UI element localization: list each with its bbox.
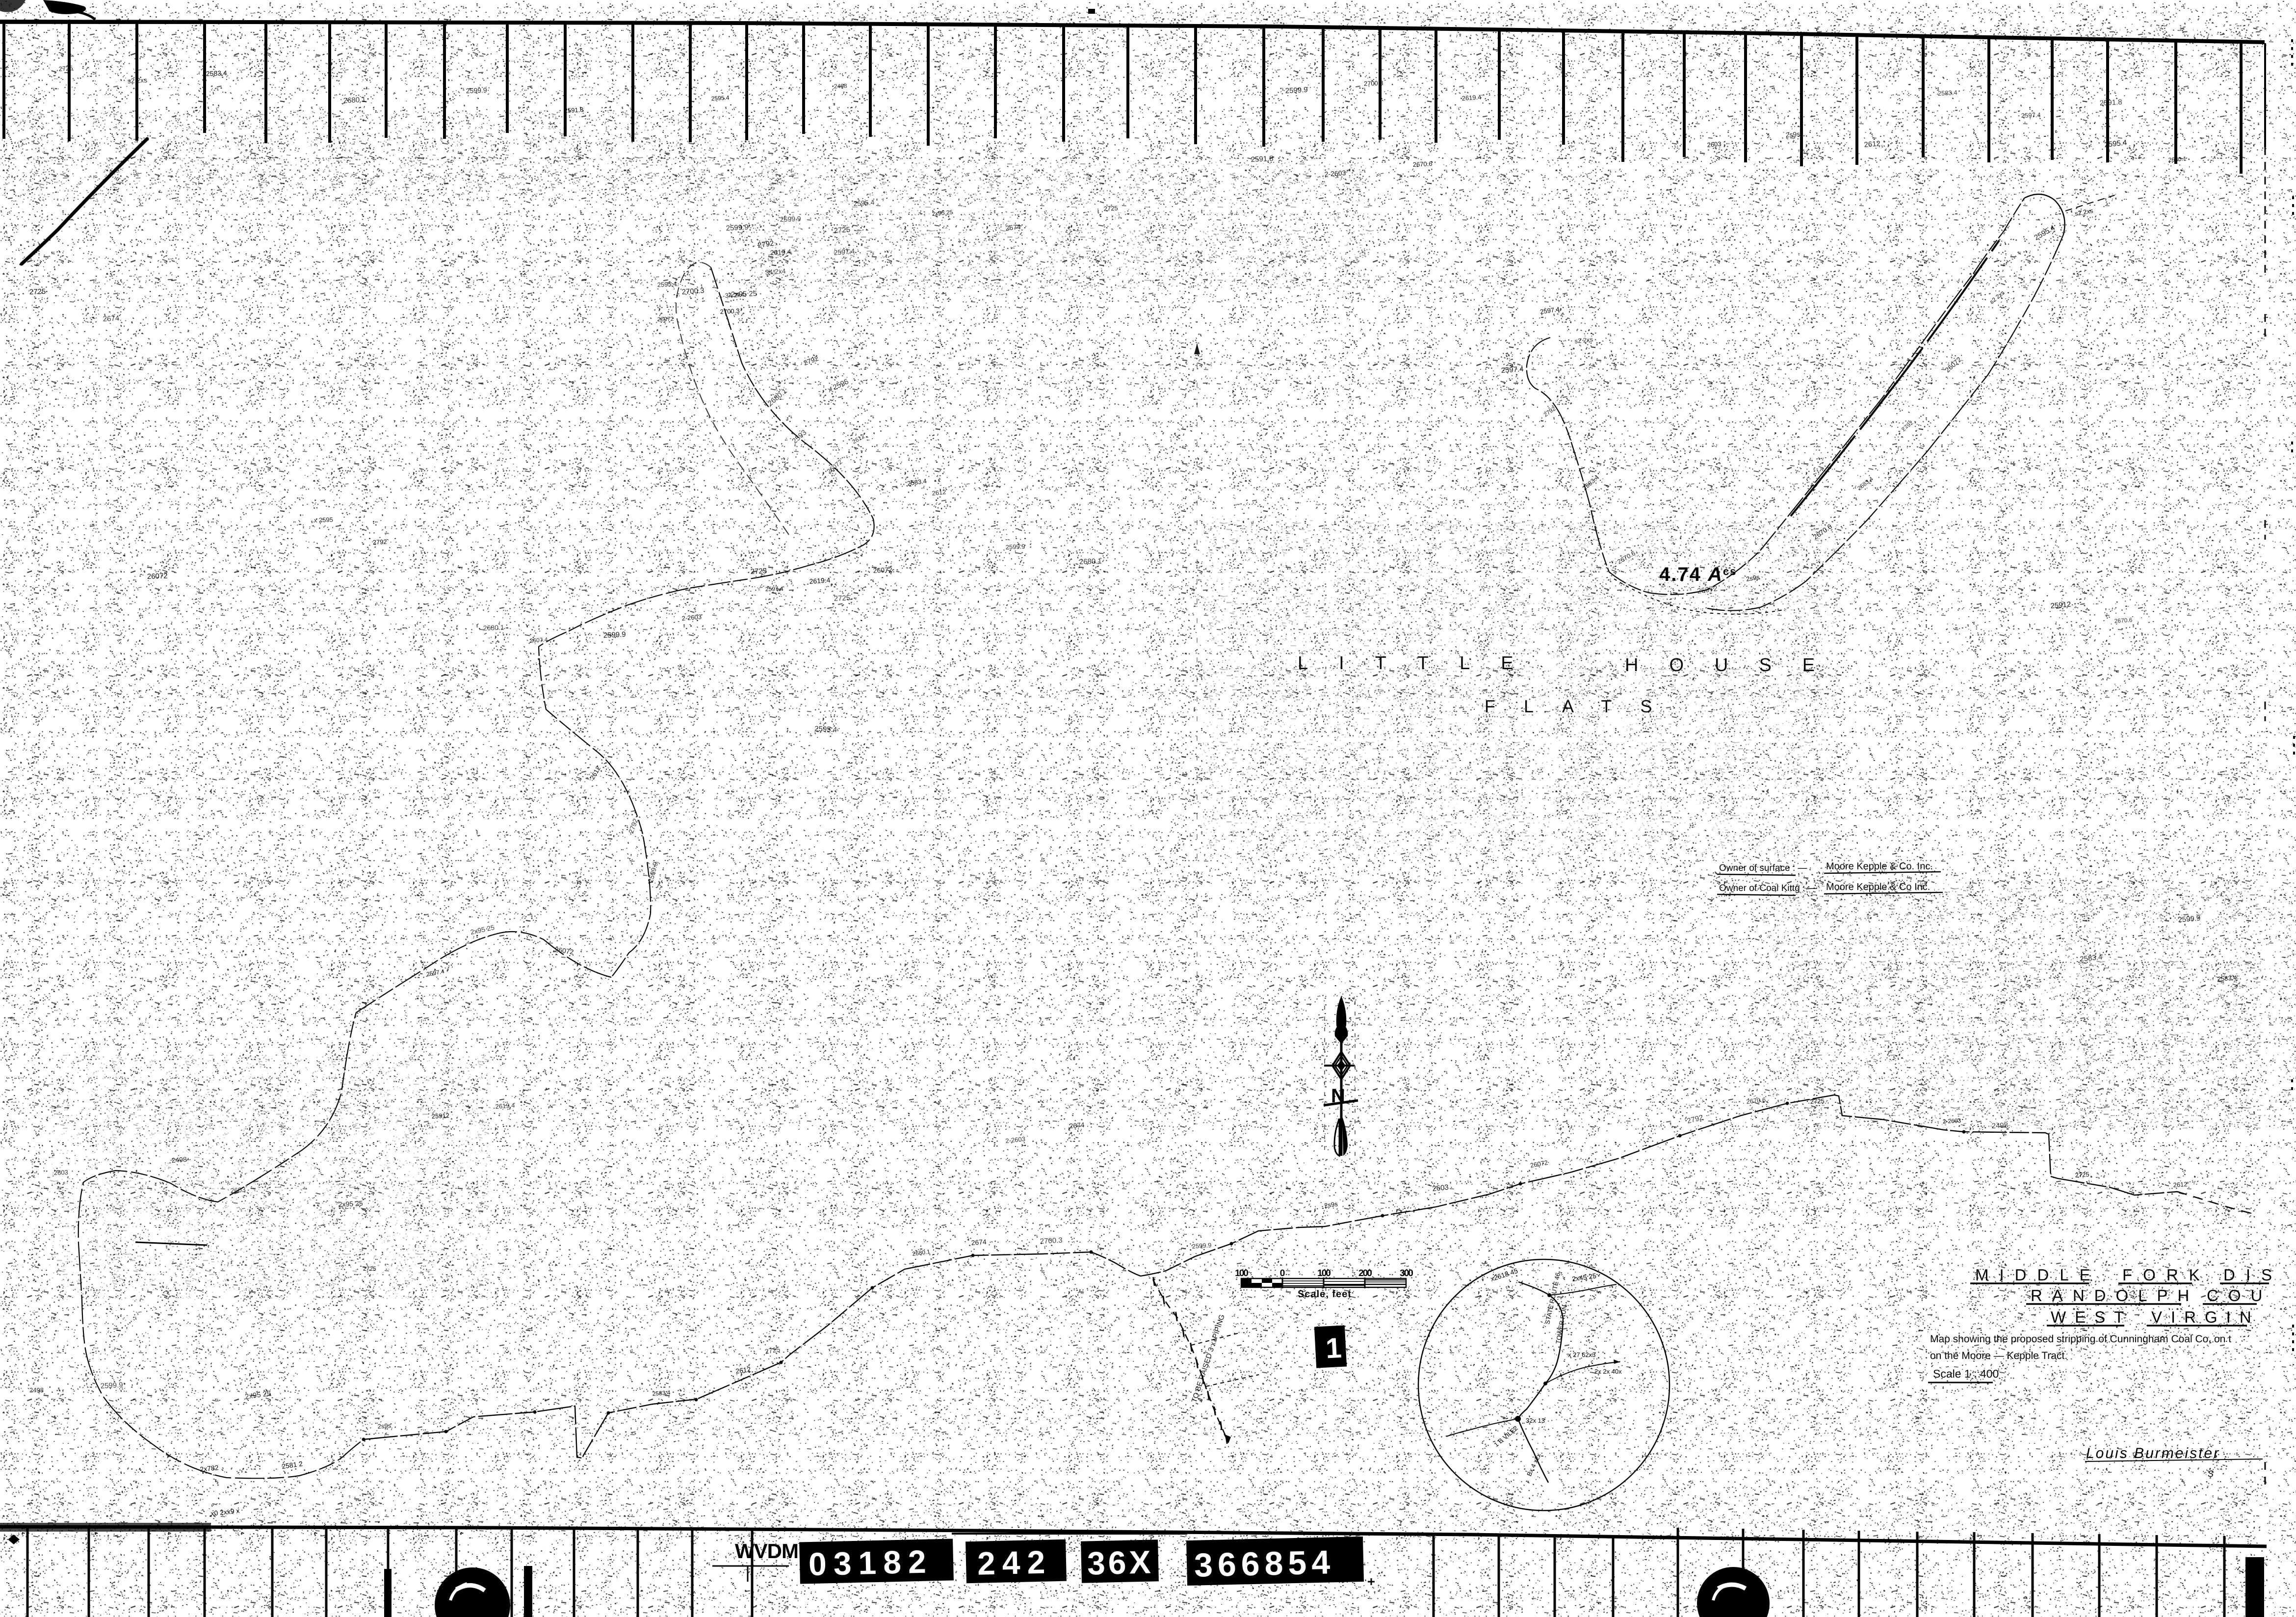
svg-text:2595.4: 2595.4 [711,94,730,102]
svg-text:2s9s: 2s9s [377,1422,391,1430]
svg-text:26072: 26072 [657,315,674,323]
svg-text:x 2595: x 2595 [314,516,334,524]
svg-text:2725: 2725 [58,64,73,73]
svg-text:242: 242 [977,1543,1052,1581]
svg-text:2607.4: 2607.4 [529,636,548,644]
svg-text:25912: 25912 [431,1112,449,1120]
svg-text:2597.4: 2597.4 [1501,365,1524,375]
svg-text:2591.8: 2591.8 [564,106,583,114]
svg-text:WEST: WEST [2051,1308,2133,1326]
svg-text:32x 13: 32x 13 [1526,1417,1545,1424]
svg-text:2597.4: 2597.4 [2021,111,2041,119]
svg-text:2599.9: 2599.9 [100,1381,123,1390]
svg-text:2700.3: 2700.3 [720,307,739,315]
svg-text:2792: 2792 [372,538,387,546]
svg-text:2612: 2612 [932,488,946,497]
svg-text:2612: 2612 [1864,139,1881,149]
svg-text:2619.4: 2619.4 [1461,93,1482,102]
svg-text:2725: 2725 [750,567,767,576]
svg-text:2612: 2612 [2173,1180,2188,1189]
svg-text:2599.9: 2599.9 [1192,1241,1212,1250]
svg-text:2603: 2603 [230,1185,246,1195]
svg-text:Ş: Ş [2208,1469,2214,1479]
svg-text:Owner of surface : —: Owner of surface : — [1719,863,1807,873]
svg-text:2x 2x 40x: 2x 2x 40x [1594,1368,1622,1375]
svg-text:2725: 2725 [1810,1097,1825,1105]
svg-text:2x95 25: 2x95 25 [338,1199,363,1208]
svg-text:100: 100 [1317,1268,1331,1278]
svg-text:MIDDLE: MIDDLE [1975,1266,2101,1284]
svg-text:2498: 2498 [29,1386,44,1394]
svg-text:2583.4: 2583.4 [1937,89,1957,97]
svg-text:2619.4: 2619.4 [495,1101,515,1110]
svg-text:2680.1: 2680.1 [1079,557,1102,566]
svg-text:2700.3: 2700.3 [1364,79,1383,87]
svg-text:FLATS: FLATS [1485,696,1680,716]
svg-text:2498: 2498 [834,82,847,90]
svg-text:RANDOLPH: RANDOLPH [2031,1286,2199,1304]
svg-text:2670.6: 2670.6 [1412,160,1432,168]
svg-text:1: 1 [1325,1332,1342,1365]
svg-text:Moore Kepple & Co Inc.: Moore Kepple & Co Inc. [1826,882,1930,892]
svg-text:2583.4: 2583.4 [206,69,228,78]
svg-text:2619.4: 2619.4 [770,248,791,257]
svg-text:2599.9: 2599.9 [466,86,488,95]
svg-text:Map showing the proposed st: Map showing the proposed stripping of Cu… [1930,1333,2231,1345]
svg-text:34 2x4: 34 2x4 [765,267,786,276]
svg-text:0: 0 [1280,1268,1285,1278]
svg-text:2700.3: 2700.3 [1040,1236,1063,1246]
svg-text:366854: 366854 [1194,1543,1335,1584]
svg-text:100: 100 [1235,1268,1248,1278]
svg-text:COU: COU [2207,1286,2272,1304]
svg-text:2599.9: 2599.9 [1285,86,1308,95]
svg-text:36X: 36X [1087,1543,1154,1581]
svg-text:VIRGIN: VIRGIN [2151,1308,2260,1326]
svg-text:2680.1: 2680.1 [343,96,366,105]
svg-text:Scale 1 : 400: Scale 1 : 400 [1933,1367,1999,1380]
svg-text:2674: 2674 [103,314,119,323]
svg-text:2599.9: 2599.9 [780,215,802,223]
svg-text:34 2x4: 34 2x4 [725,291,744,299]
svg-text:03182: 03182 [808,1543,933,1582]
svg-text:x 27 62x3: x 27 62x3 [1568,1351,1595,1358]
svg-text:WVDM: WVDM [735,1539,798,1563]
svg-text:2595.4: 2595.4 [853,198,875,208]
svg-text:2725: 2725 [1103,205,1118,212]
svg-text:2-2603: 2-2603 [1942,1117,1961,1125]
svg-text:2670.6: 2670.6 [2114,616,2133,625]
svg-text:2680.1: 2680.1 [2168,155,2187,163]
svg-text:2700.3: 2700.3 [681,287,704,296]
svg-text:2674: 2674 [971,1238,987,1247]
svg-text:FORK: FORK [2122,1266,2211,1284]
svg-text:Louis Burmeister: Louis Burmeister [2086,1445,2220,1461]
svg-text:2597.4: 2597.4 [765,585,783,593]
svg-text:Scale, feet: Scale, feet [1298,1289,1352,1300]
svg-text:LITTLE: LITTLE [1298,653,1544,674]
svg-text:2498: 2498 [1991,1121,2008,1130]
svg-text:DIS: DIS [2223,1266,2283,1284]
svg-text:2595.4: 2595.4 [814,725,837,734]
svg-text:2674: 2674 [1069,1121,1085,1130]
svg-text:2599.9: 2599.9 [603,630,626,640]
svg-text:2603: 2603 [54,1169,68,1176]
svg-text:2599.9: 2599.9 [1005,543,1025,551]
svg-text:s2 2xs: s2 2xs [127,76,147,85]
svg-text:HOUSE: HOUSE [1625,655,1846,676]
svg-text:2725: 2725 [834,226,850,235]
svg-text:2725: 2725 [2075,1171,2089,1179]
svg-text:2498: 2498 [171,1155,187,1164]
svg-text:on the Moore — Kepple Tract.: on the Moore — Kepple Tract. [1930,1350,2067,1361]
svg-text:2603: 2603 [1432,1183,1449,1193]
svg-text:2583.4: 2583.4 [652,1389,671,1397]
svg-text:2595.4: 2595.4 [657,280,677,288]
svg-text:2-2603: 2-2603 [1324,169,1346,178]
svg-text:Owner of Coal Kittg : —: Owner of Coal Kittg : — [1719,883,1817,893]
svg-text:2674: 2674 [1005,223,1021,232]
svg-text:2603: 2603 [1707,140,1722,149]
svg-text:26072: 26072 [873,566,892,574]
svg-text:2725: 2725 [363,1265,376,1272]
svg-text:200: 200 [1358,1268,1372,1278]
svg-text:2599.9: 2599.9 [726,223,749,233]
svg-text:2725: 2725 [834,594,850,603]
svg-text:2s9s: 2s9s [1785,130,1800,139]
svg-text:300: 300 [1400,1268,1413,1278]
svg-text:Moore Kepple & Co. Inc.: Moore Kepple & Co. Inc. [1826,861,1933,872]
svg-text:26072: 26072 [147,572,168,581]
svg-text:2583.4: 2583.4 [2217,974,2237,983]
svg-text:2619.4: 2619.4 [809,576,831,585]
svg-text:2725: 2725 [29,287,46,296]
svg-text:25912: 25912 [2050,600,2071,610]
svg-text:2591.8: 2591.8 [1251,155,1274,164]
svg-text:2591.8: 2591.8 [2099,98,2122,107]
svg-text:2680.1: 2680.1 [483,624,505,632]
